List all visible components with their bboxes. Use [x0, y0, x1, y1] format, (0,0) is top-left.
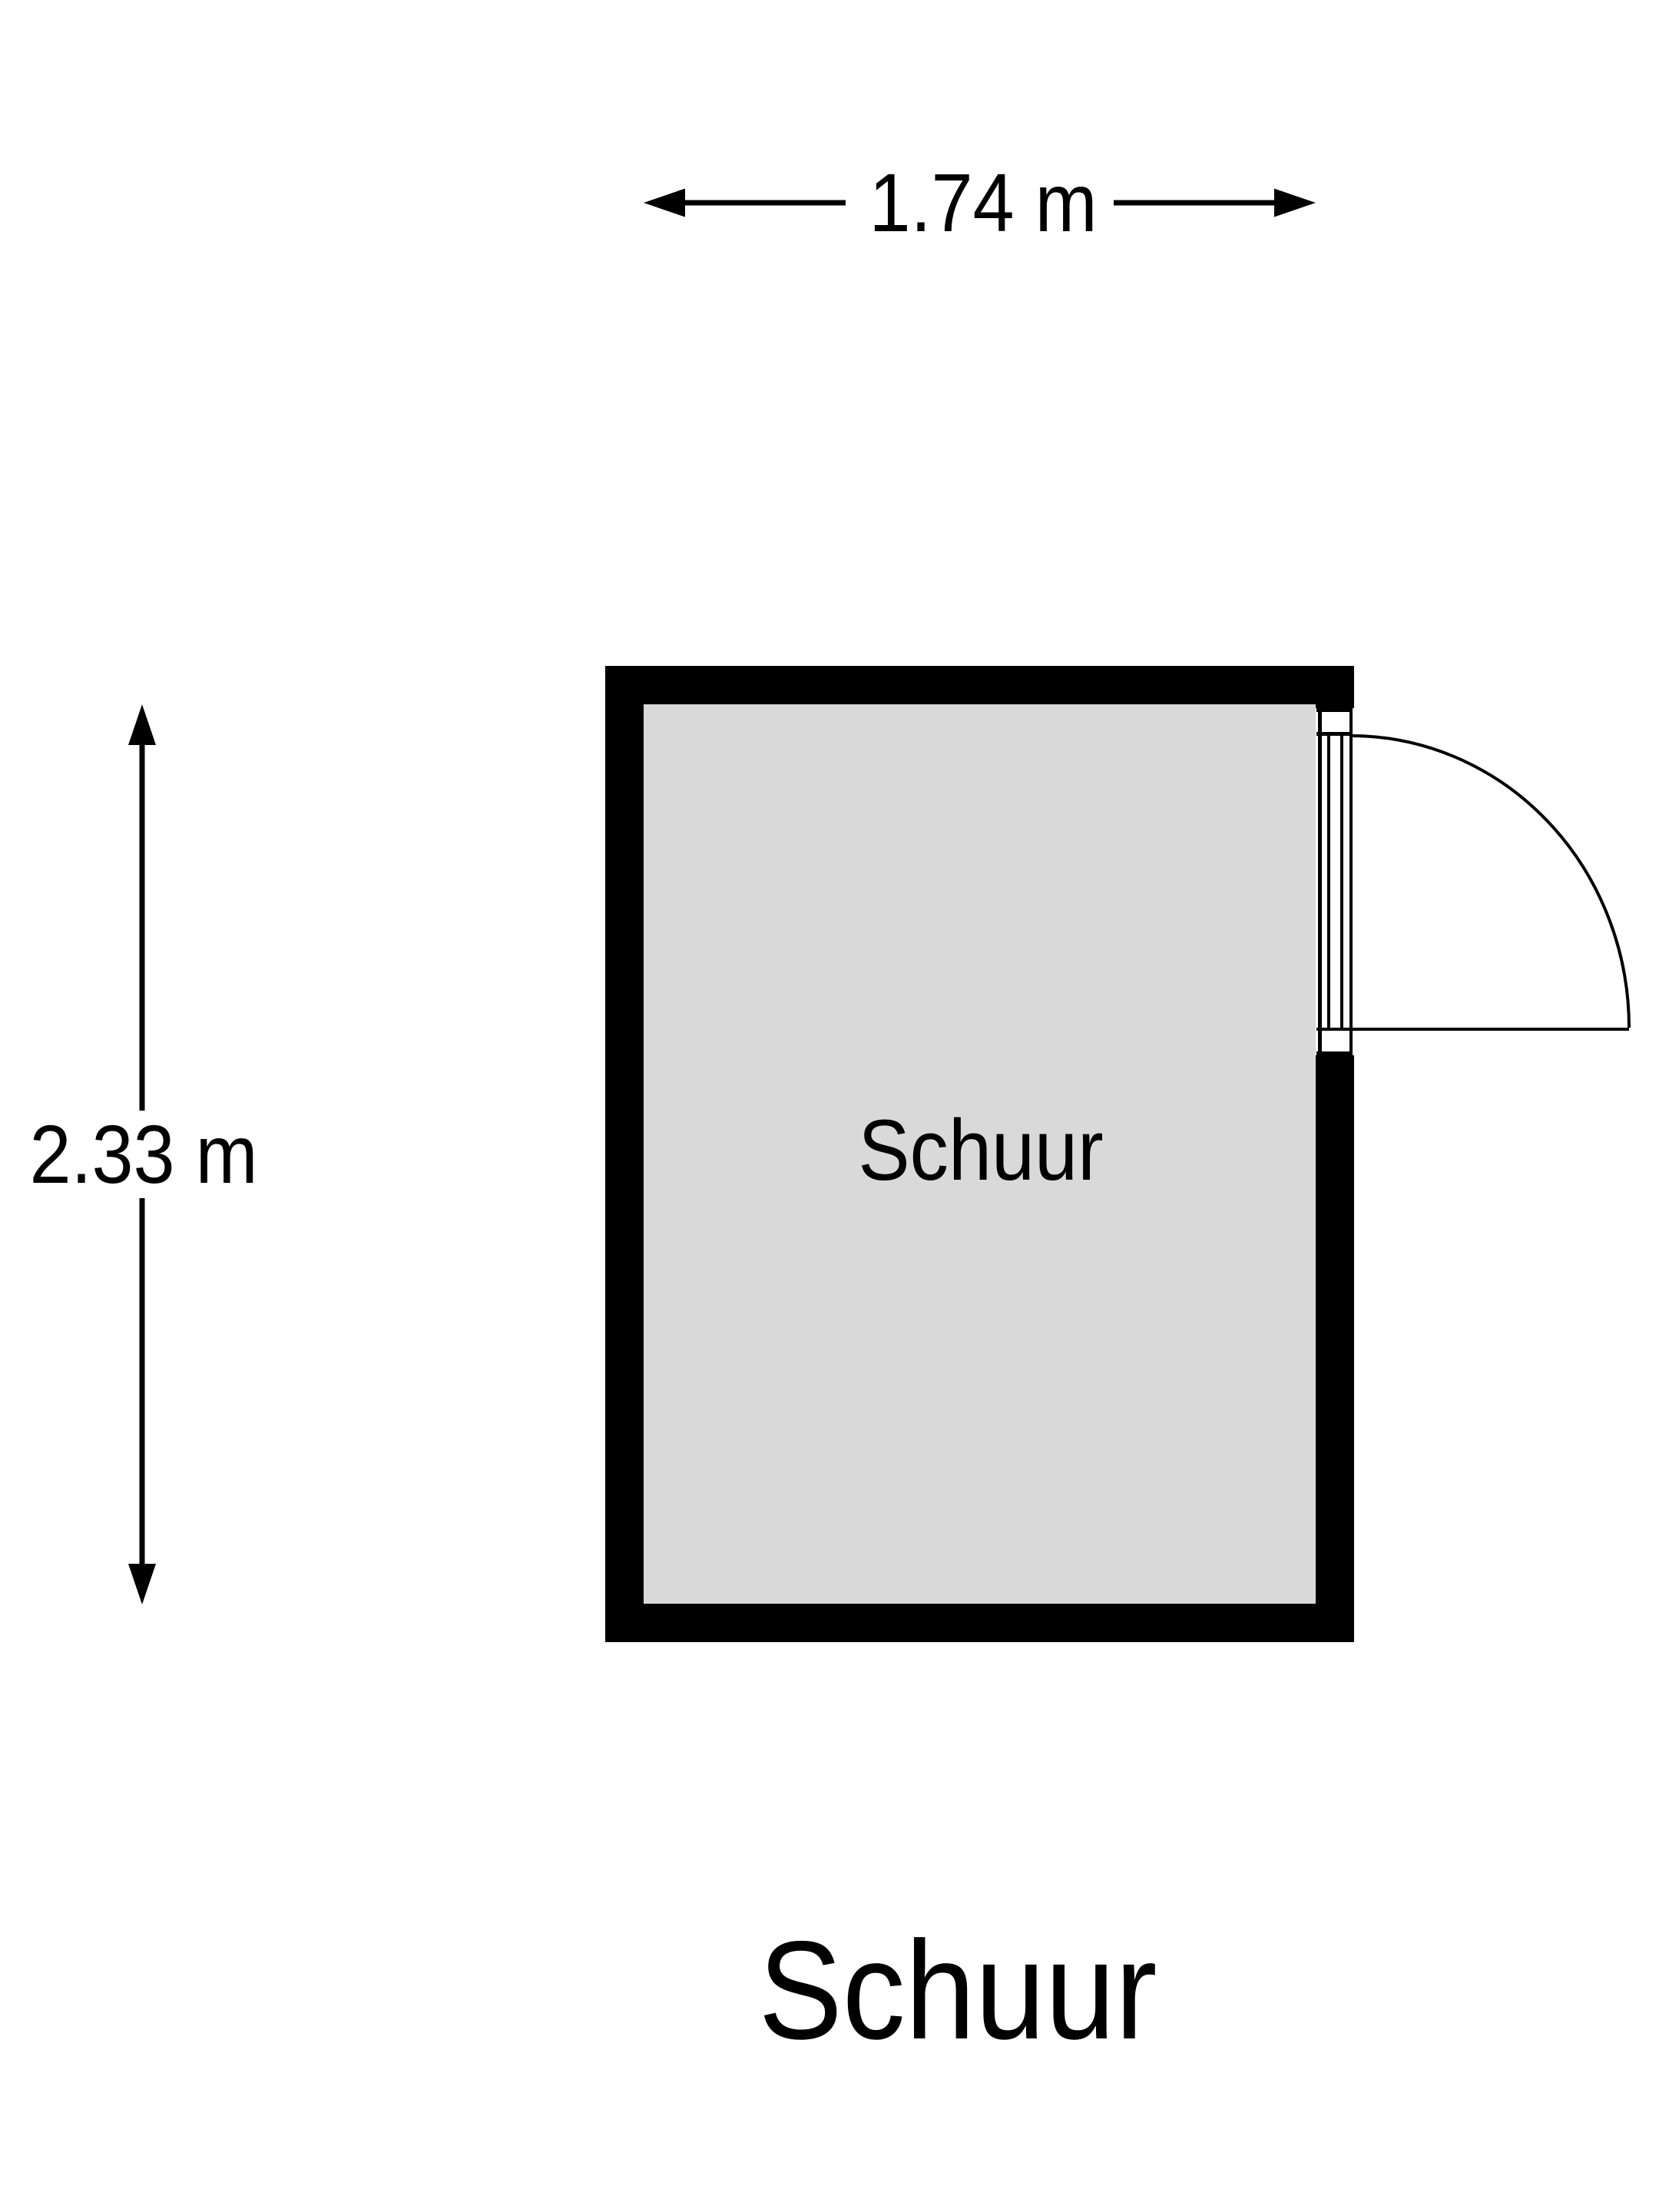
svg-text:2.33 m: 2.33 m	[29, 1108, 257, 1200]
svg-text:Schuur: Schuur	[759, 1912, 1157, 2068]
svg-text:Schuur: Schuur	[858, 1102, 1103, 1198]
svg-text:1.74 m: 1.74 m	[869, 156, 1097, 249]
